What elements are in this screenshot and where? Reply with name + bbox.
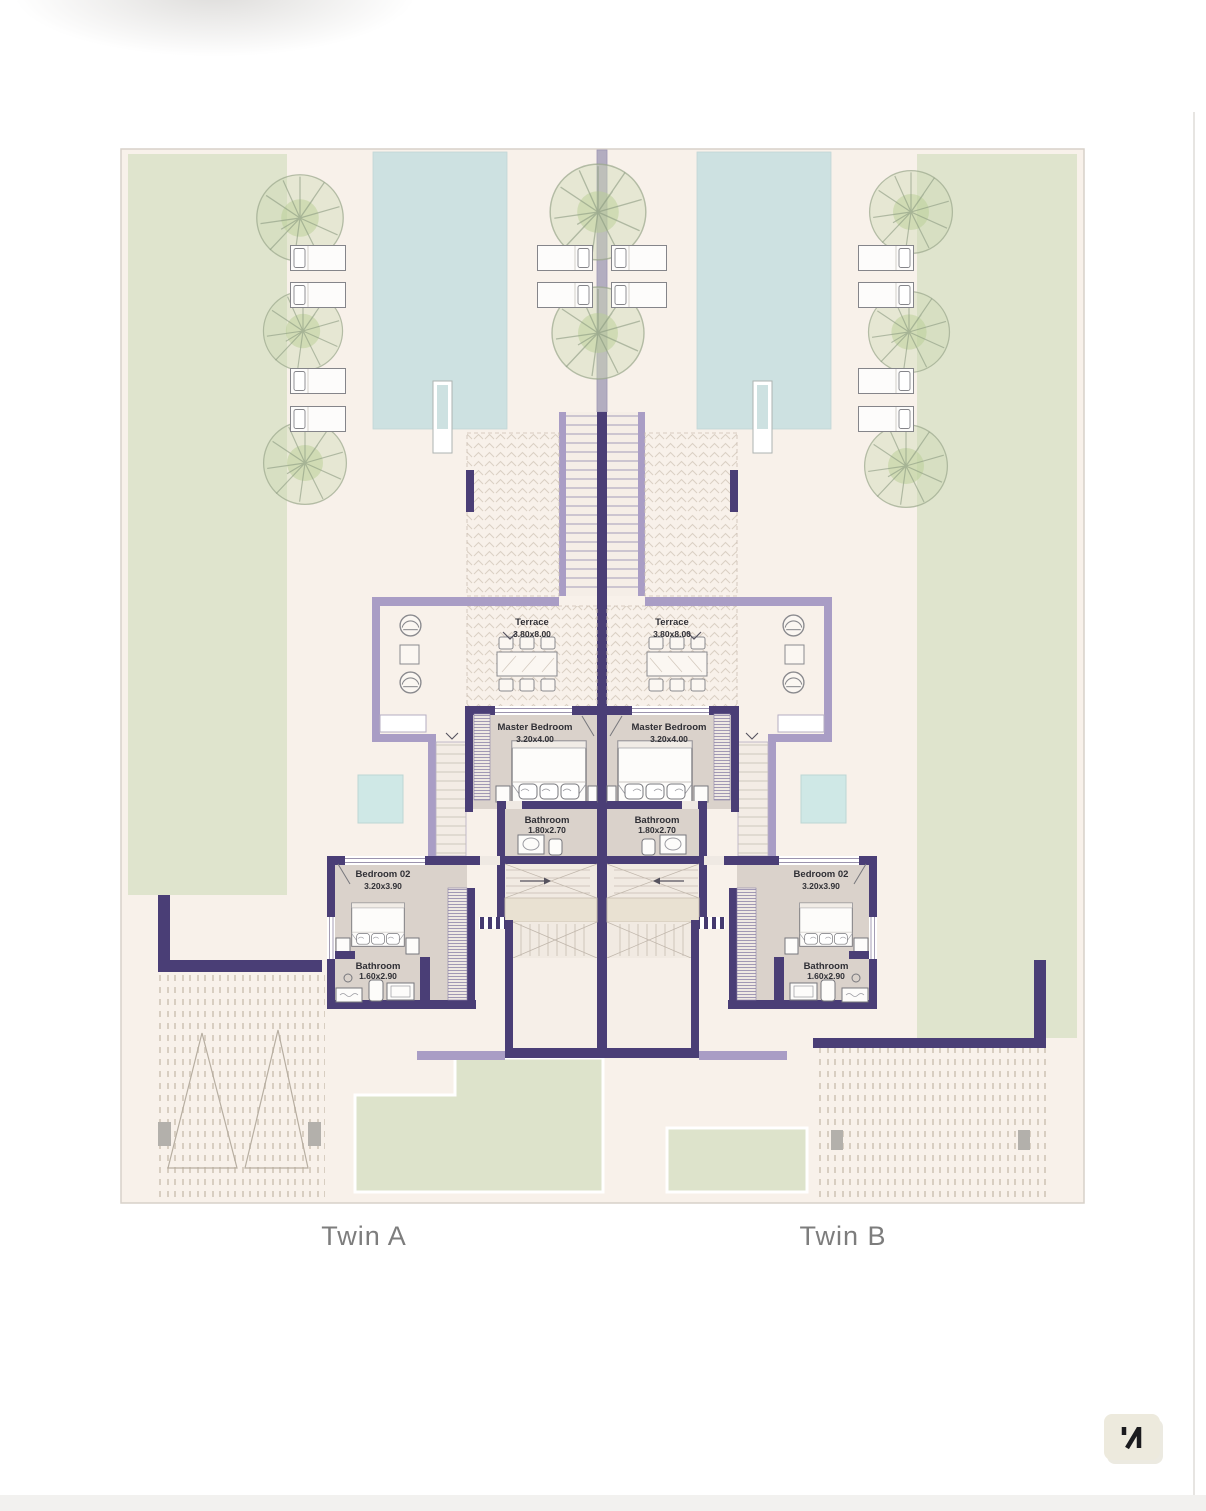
pool-ladder [433,381,452,453]
driveway-right [815,1048,1046,1197]
bathroom-02-dim-twin-b: 1.60x2.90 [807,971,845,981]
floor-plan-drawing: Terrace 3.80x8.00 Terrace 3.80x8.00 Mast… [0,0,1206,1511]
sun-lounger-icon [859,246,914,271]
terrace-dim-twin-a: 3.80x8.00 [513,629,551,639]
page-edge-scrollbar[interactable] [1193,112,1195,1500]
floor-plan-page: Terrace 3.80x8.00 Terrace 3.80x8.00 Mast… [0,0,1206,1511]
garden-wall [699,1051,787,1060]
pergola-beam [638,412,645,596]
sun-lounger-icon [291,246,346,271]
tree-icon [264,422,347,505]
twin-a-caption: Twin A [321,1221,407,1251]
pool-ladder [753,381,772,453]
tree-icon [865,425,948,508]
bathroom-dim-twin-b: 1.80x2.70 [638,825,676,835]
terrace-dim-twin-b: 3.80x8.00 [653,629,691,639]
bedroom-02-dim-twin-a: 3.20x3.90 [364,881,402,891]
bedroom-02-label-twin-b: Bedroom 02 [794,869,849,880]
tree-icon [870,171,953,254]
terrace-label-twin-b: Terrace [655,617,689,628]
lawn-strip-right [917,154,1077,1038]
master-bedroom-label-twin-a: Master Bedroom [498,722,573,733]
page-bottom-edge [0,1495,1206,1511]
bedroom-02-dim-twin-b: 3.20x3.90 [802,881,840,891]
sun-lounger-icon [291,283,346,308]
driveway-left [155,975,325,1197]
master-bedroom-label-twin-b: Master Bedroom [632,722,707,733]
lawn-bottom-right [667,1128,807,1192]
sun-lounger-icon [291,407,346,432]
sun-lounger-icon [612,246,667,271]
sun-lounger-icon [538,283,593,308]
garden-wall [417,1051,505,1060]
party-wall [597,412,607,1058]
sun-lounger-icon [859,283,914,308]
master-bedroom-dim-twin-a: 3.20x4.00 [516,734,554,744]
bedroom-02-label-twin-a: Bedroom 02 [356,869,411,880]
master-bedroom-dim-twin-b: 3.20x4.00 [650,734,688,744]
north-arrow-icon [1104,1414,1163,1464]
terrace-label-twin-a: Terrace [515,617,549,628]
sun-lounger-icon [538,246,593,271]
bathroom-dim-twin-a: 1.80x2.70 [528,825,566,835]
sun-lounger-icon [859,369,914,394]
bathroom-02-dim-twin-a: 1.60x2.90 [359,971,397,981]
sun-lounger-icon [859,407,914,432]
sun-lounger-icon [291,369,346,394]
pergola-beam [559,412,566,596]
lawn-strip-left [128,154,287,895]
sun-lounger-icon [612,283,667,308]
twin-b-caption: Twin B [799,1221,886,1251]
